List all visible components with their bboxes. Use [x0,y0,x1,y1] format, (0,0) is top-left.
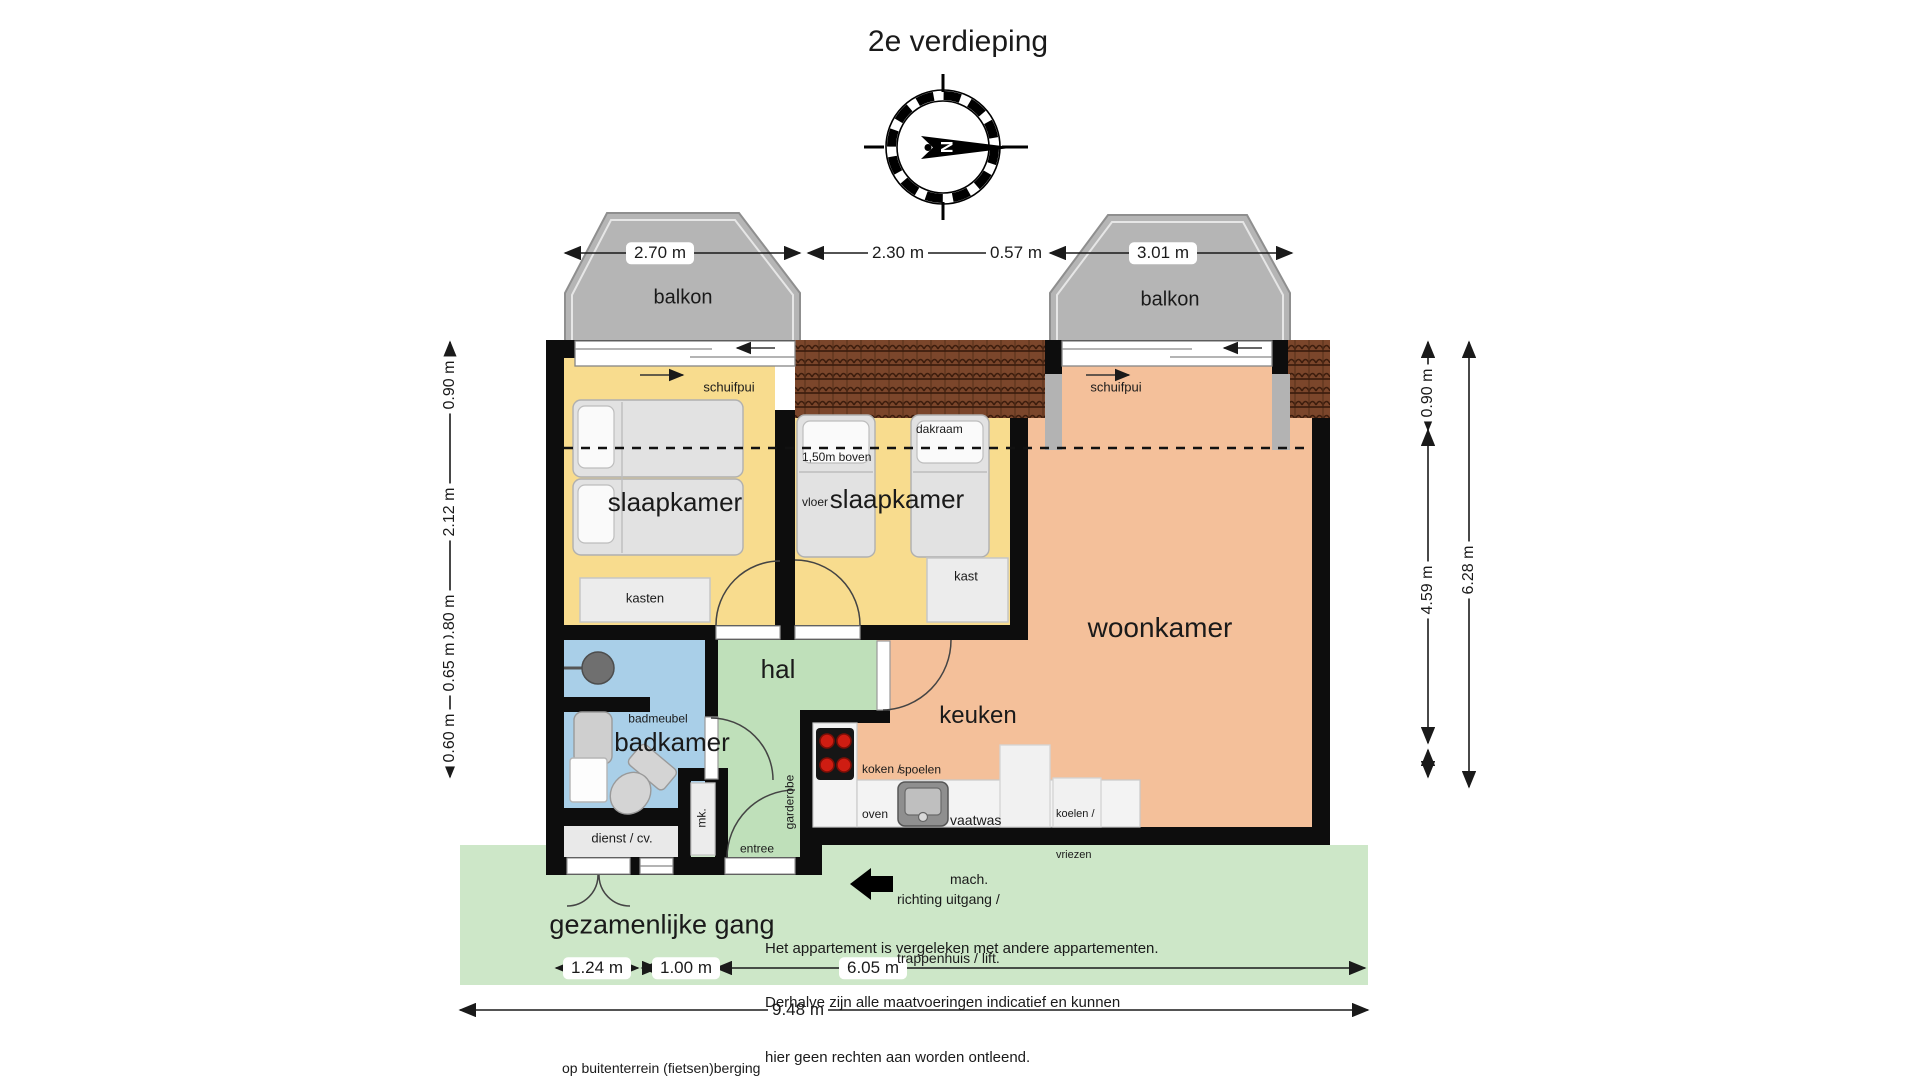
washbasin-icon [570,758,607,802]
disclaimer-note: Het appartement is vergeleken met andere… [765,903,1159,1080]
sink-icon [898,782,948,826]
kasten-label: kasten [626,592,664,607]
floorplan-page: 2e verdieping N balkon balkon 2.70 m 2.3… [0,0,1920,1080]
room-label-entree: entree [740,842,774,857]
room-label-badkamer: badkamer [614,728,730,758]
balcony-right [1050,215,1290,350]
dim-left-065: 0.65 m [441,639,459,696]
dim-balcony-right: 3.01 m [1129,242,1197,264]
badmeubel-label: badmeubel [628,712,687,727]
window-dienst [640,858,673,874]
boven-vloer-label: 1,50m boven vloer [802,420,871,525]
schuifpui-right-label: schuifpui [1090,381,1141,396]
dim-left-060: 0.60 m [441,710,459,767]
dim-gap-right: 0.57 m [986,243,1046,263]
dim-right-628: 6.28 m [1460,542,1478,599]
bed-double [573,400,743,555]
dim-gap-left: 2.30 m [868,243,928,263]
koken-oven-label: koken / oven [862,732,901,837]
dim-left-090: 0.90 m [441,357,459,414]
room-label-keuken: keuken [939,702,1016,730]
room-label-gang: gezamenlijke gang [549,909,774,940]
dakraam-label: dakraam [916,422,963,437]
dim-bottom-124: 1.24 m [563,957,631,979]
compass-north-label: N [936,141,956,153]
dim-left-212: 2.12 m [441,484,459,541]
balkon-left-label: balkon [654,287,713,310]
spoelen-label: spoelen [899,763,941,778]
balcony-left [565,213,800,350]
room-hal [715,640,877,710]
room-label-hal: hal [761,655,796,685]
room-label-dienst-cv: dienst / cv. [591,832,652,847]
room-label-mk: mk. [695,808,710,827]
dishwasher-box [1000,745,1050,827]
schuifpui-left-label: schuifpui [703,381,754,396]
dim-right-090: 0.90 m [1419,365,1437,422]
room-label-slaapkamer1: slaapkamer [608,488,742,518]
koelen-vriezen-label: koelen / vriezen [1056,780,1095,876]
cooktop-icon [816,728,854,780]
room-label-garderobe: garderobe [783,775,798,830]
dim-balcony-left: 2.70 m [626,242,694,264]
badmeubel-icon [574,712,612,764]
room-label-woonkamer: woonkamer [1088,612,1233,644]
page-title: 2e verdieping [868,25,1048,60]
dim-right-459: 4.59 m [1419,562,1437,619]
dim-bottom-100: 1.00 m [652,957,720,979]
balkon-right-label: balkon [1141,289,1200,312]
room-woonkamer [1028,362,1312,640]
berging-note: op buitenterrein (fietsen)berging ca. 1,… [562,1020,760,1080]
kast-label: kast [954,570,978,585]
